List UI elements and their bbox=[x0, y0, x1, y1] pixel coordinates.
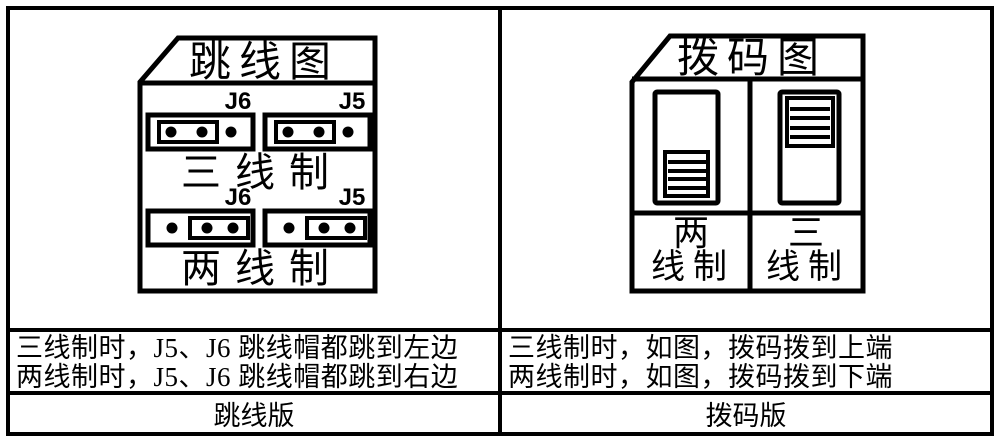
dip-footer-label: 拨码版 bbox=[706, 395, 787, 432]
pin-dot bbox=[228, 223, 239, 234]
dip-switch-up bbox=[780, 92, 839, 203]
pin-dot bbox=[167, 223, 178, 234]
dip-two-wire-label-bottom: 线制 bbox=[651, 248, 735, 286]
diagram-table: 跳线图 J6 J5 bbox=[6, 6, 994, 436]
jumper-j6-three-wire bbox=[148, 115, 253, 149]
dip-notes-cell: 三线制时，如图，拨码拨到上端 两线制时，如图，拨码拨到下端 bbox=[502, 332, 990, 395]
jumper-diagram-cell: 跳线图 J6 J5 bbox=[10, 10, 502, 332]
pin-dot bbox=[314, 127, 325, 138]
jumper-note-line1: 三线制时，J5、J6 跳线帽都跳到左边 bbox=[16, 334, 498, 363]
dip-switch-down bbox=[655, 92, 718, 203]
pin-dot bbox=[197, 127, 208, 138]
three-wire-caption: 三线制 bbox=[181, 150, 343, 195]
jumper-footer-cell: 跳线版 bbox=[10, 395, 502, 432]
jumper-j6-bottom-label: J6 bbox=[225, 184, 252, 211]
pin-dot bbox=[343, 127, 354, 138]
jumper-j6-two-wire bbox=[148, 211, 253, 245]
dip-note-line2: 两线制时，如图，拨码拨到下端 bbox=[508, 363, 990, 392]
dip-three-wire-label-top: 三 bbox=[788, 213, 824, 253]
pin-dot bbox=[345, 223, 356, 234]
dip-two-wire-label-top: 两 bbox=[673, 213, 709, 253]
dip-board-diagram: 拨码图 bbox=[502, 10, 990, 328]
pin-dot bbox=[319, 223, 330, 234]
dip-board-title: 拨码图 bbox=[677, 36, 827, 82]
jumper-j5-three-wire bbox=[265, 115, 370, 149]
pin-dot bbox=[166, 127, 177, 138]
pin-dot bbox=[284, 223, 295, 234]
jumper-footer-label: 跳线版 bbox=[214, 395, 295, 432]
dip-three-wire-label-bottom: 线制 bbox=[766, 248, 850, 286]
jumper-board-diagram: 跳线图 J6 J5 bbox=[10, 10, 498, 328]
jumper-j5-top-label: J5 bbox=[339, 88, 366, 115]
pin-dot bbox=[283, 127, 294, 138]
jumper-board-title: 跳线图 bbox=[189, 40, 339, 86]
dip-note-line1: 三线制时，如图，拨码拨到上端 bbox=[508, 334, 990, 363]
jumper-note-line2: 两线制时，J5、J6 跳线帽都跳到右边 bbox=[16, 363, 498, 392]
jumper-notes-cell: 三线制时，J5、J6 跳线帽都跳到左边 两线制时，J5、J6 跳线帽都跳到右边 bbox=[10, 332, 502, 395]
pin-dot bbox=[226, 127, 237, 138]
two-wire-caption: 两线制 bbox=[181, 246, 343, 291]
dip-diagram-cell: 拨码图 bbox=[502, 10, 990, 332]
jumper-j5-two-wire bbox=[265, 211, 370, 245]
dip-footer-cell: 拨码版 bbox=[502, 395, 990, 432]
manual-figure: 跳线图 J6 J5 bbox=[0, 0, 1000, 442]
pin-dot bbox=[202, 223, 213, 234]
jumper-j5-bottom-label: J5 bbox=[339, 184, 366, 211]
jumper-j6-top-label: J6 bbox=[225, 88, 252, 115]
